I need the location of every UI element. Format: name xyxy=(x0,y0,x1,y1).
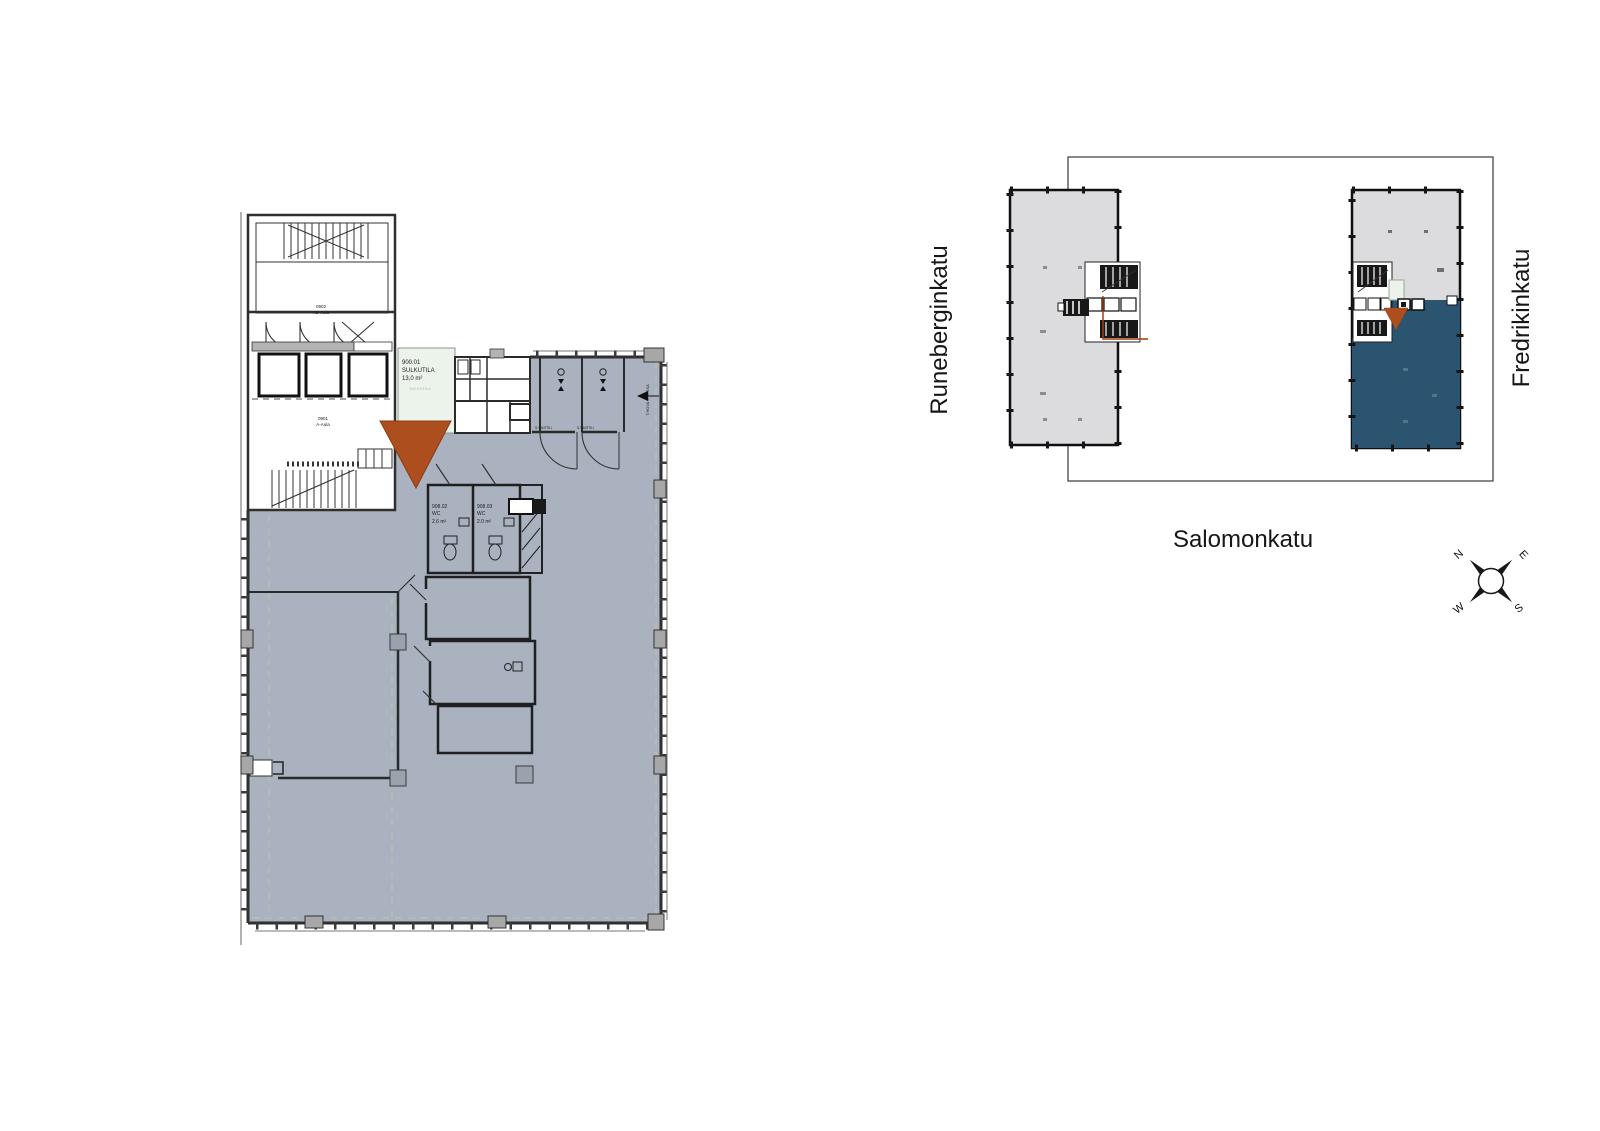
elevator-shafts xyxy=(259,354,387,396)
street-label-left: Runeberginkatu xyxy=(926,245,953,414)
floor-plan-page: S-VANTTILI S-VANTTILI T.HOVA OVESSA xyxy=(0,0,1600,1131)
key-plan-building-right xyxy=(1352,190,1460,448)
room-0901-id: 0901 xyxy=(318,416,329,421)
main-floor-plan: S-VANTTILI S-VANTTILI T.HOVA OVESSA xyxy=(241,212,667,945)
wc2-id: 908.03 xyxy=(477,504,493,510)
compass-e: E xyxy=(1516,548,1530,561)
door-label-2: S-VANTTILI xyxy=(577,426,594,430)
compass-hub xyxy=(1479,569,1504,594)
room-0902-id: 0902 xyxy=(316,304,327,309)
key-plan: Runeberginkatu Fredrikinkatu Salomonkatu… xyxy=(926,157,1535,617)
compass-rose: N E S W xyxy=(1451,548,1530,617)
street-label-right: Fredrikinkatu xyxy=(1508,249,1535,388)
core-detail xyxy=(1354,265,1391,336)
compass-n: N xyxy=(1452,548,1466,562)
sulkutila-note: SULKUTILA xyxy=(409,386,431,391)
compass-w: W xyxy=(1451,600,1467,616)
wc2-name: WC xyxy=(477,511,486,517)
sulkutila-area: 13,0 m² xyxy=(402,376,422,382)
street-label-bottom: Salomonkatu xyxy=(1173,526,1313,553)
sulkutila-id: 900.01 xyxy=(402,360,421,366)
wc2-area: 2.0 m² xyxy=(477,519,492,525)
service-core-cluster xyxy=(455,349,530,433)
sulkutila-name: SULKUTILA xyxy=(402,368,435,374)
door-label-1: S-VANTTILI xyxy=(535,426,552,430)
mini-sulkutila xyxy=(1389,280,1404,300)
wc1-area: 2.6 m² xyxy=(432,519,447,525)
drawing-canvas: S-VANTTILI S-VANTTILI T.HOVA OVESSA xyxy=(0,0,1600,1131)
wc1-id: 908.02 xyxy=(432,504,448,510)
compass-s: S xyxy=(1513,602,1526,616)
key-plan-building-left xyxy=(1010,190,1148,445)
wc1-name: WC xyxy=(432,511,441,517)
stair-tower xyxy=(248,215,395,510)
room-0902-name: A2-Aula xyxy=(313,310,330,315)
room-0901-name: A-Aula xyxy=(316,422,330,427)
